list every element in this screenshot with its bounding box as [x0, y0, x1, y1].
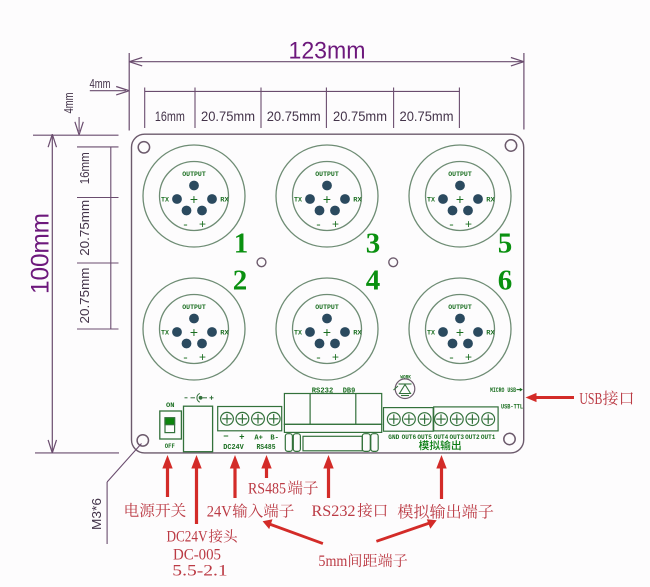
svg-text:16mm: 16mm	[155, 109, 185, 124]
svg-text:RX: RX	[353, 196, 362, 203]
svg-text:16mm: 16mm	[77, 152, 92, 184]
svg-text:-: -	[448, 218, 455, 232]
svg-text:OFF: OFF	[165, 443, 175, 450]
svg-text:TX: TX	[427, 329, 435, 336]
svg-text:20.75mm: 20.75mm	[77, 200, 92, 256]
svg-text:B-: B-	[270, 435, 279, 443]
svg-text:+: +	[239, 433, 244, 443]
svg-text:DB9: DB9	[343, 388, 356, 396]
svg-text:OUT1: OUT1	[481, 434, 496, 441]
svg-text:+: +	[323, 326, 331, 342]
svg-text:5mm: 5mm	[318, 553, 347, 570]
svg-text:20.75mm: 20.75mm	[333, 109, 387, 124]
svg-text:RX: RX	[220, 329, 229, 336]
svg-text:DC-005: DC-005	[173, 547, 221, 564]
svg-text:+: +	[332, 218, 339, 232]
svg-text:4: 4	[366, 265, 381, 297]
svg-text:+: +	[199, 218, 206, 232]
svg-text:OUT5: OUT5	[417, 434, 432, 441]
svg-text:−: −	[223, 432, 228, 442]
svg-text:RS232: RS232	[312, 503, 356, 520]
svg-text:4mm: 4mm	[90, 76, 111, 91]
svg-text:+: +	[465, 218, 472, 232]
svg-text:USB: USB	[579, 389, 602, 408]
svg-text:20.75mm: 20.75mm	[267, 109, 321, 124]
svg-text:+: +	[323, 193, 331, 209]
svg-text:20.75mm: 20.75mm	[77, 268, 92, 324]
svg-text:RX: RX	[486, 196, 495, 203]
svg-text:6: 6	[498, 265, 513, 297]
svg-text:TX: TX	[161, 196, 169, 203]
svg-text:2: 2	[233, 265, 248, 297]
svg-text:RX: RX	[486, 329, 495, 336]
svg-text:-: -	[182, 218, 189, 232]
svg-text:1: 1	[234, 228, 249, 260]
svg-text:A+: A+	[254, 435, 263, 443]
svg-text:RX: RX	[353, 329, 362, 336]
svg-text:+: +	[190, 193, 198, 209]
svg-text:+: +	[332, 351, 339, 365]
svg-text:5: 5	[498, 228, 513, 260]
svg-text:RS485: RS485	[248, 481, 286, 498]
svg-text:-: -	[182, 351, 189, 365]
svg-text:OUTPUT: OUTPUT	[315, 304, 339, 311]
svg-text:OUT4: OUT4	[434, 434, 449, 441]
svg-text:+: +	[456, 193, 464, 209]
svg-text:OUTPUT: OUTPUT	[448, 171, 472, 178]
svg-text:GND: GND	[388, 434, 399, 441]
svg-text:M3*6: M3*6	[89, 498, 104, 530]
svg-text:20.75mm: 20.75mm	[400, 109, 454, 124]
svg-text:TX: TX	[427, 196, 435, 203]
svg-text:USB-TTL: USB-TTL	[501, 404, 523, 411]
svg-text:TX: TX	[294, 196, 302, 203]
svg-text:OUT3: OUT3	[450, 434, 465, 441]
svg-text:OUTPUT: OUTPUT	[448, 304, 472, 311]
svg-text:ON: ON	[166, 402, 175, 409]
svg-text:OUT2: OUT2	[465, 434, 480, 441]
svg-text:TX: TX	[161, 329, 169, 336]
svg-text:RS232: RS232	[312, 388, 334, 396]
svg-text:TX: TX	[294, 329, 302, 336]
svg-text:+: +	[199, 351, 206, 365]
svg-text:20.75mm: 20.75mm	[201, 109, 255, 124]
svg-text:RS485: RS485	[257, 444, 276, 452]
svg-text:-: -	[315, 218, 322, 232]
svg-text:24V: 24V	[207, 504, 232, 521]
svg-text:123mm: 123mm	[289, 38, 366, 65]
svg-text:+: +	[190, 326, 198, 342]
svg-text:MICRO USB: MICRO USB	[490, 387, 516, 394]
svg-text:-: -	[315, 351, 322, 365]
svg-text:-: -	[448, 351, 455, 365]
svg-text:4mm: 4mm	[61, 93, 76, 114]
svg-text:+: +	[456, 326, 464, 342]
svg-text:3: 3	[366, 228, 381, 260]
svg-text:DC24V: DC24V	[167, 529, 208, 546]
svg-text:OUTPUT: OUTPUT	[315, 171, 339, 178]
svg-text:DC24V: DC24V	[223, 444, 244, 452]
svg-text:+: +	[465, 351, 472, 365]
svg-text:OUTPUT: OUTPUT	[182, 304, 206, 311]
svg-text:5.5-2.1: 5.5-2.1	[172, 563, 227, 580]
svg-text:100mm: 100mm	[27, 213, 55, 294]
svg-text:OUT6: OUT6	[402, 434, 417, 441]
svg-text:RX: RX	[220, 196, 229, 203]
svg-text:OUTPUT: OUTPUT	[182, 171, 206, 178]
